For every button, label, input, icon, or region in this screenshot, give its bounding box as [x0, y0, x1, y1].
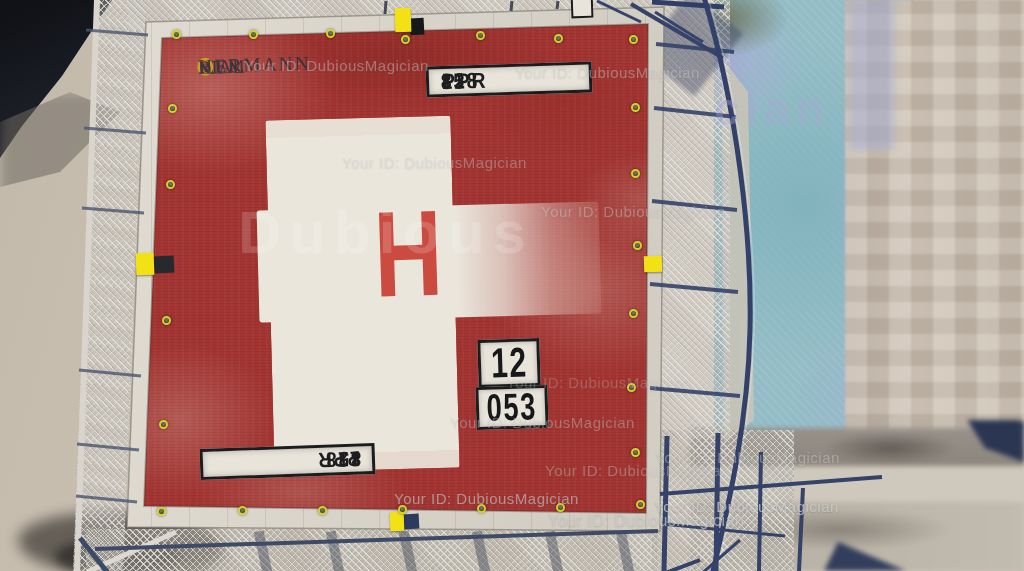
- perimeter-light: [401, 35, 410, 44]
- watermark-id-text: Your ID: DubiousMagician: [394, 490, 579, 507]
- watermark-id-text: Your ID: DubiousMagician: [541, 203, 726, 220]
- watermark-large: Dubious: [238, 198, 534, 267]
- watermark-id-text: Your ID: DubiousMagician: [515, 64, 700, 81]
- perimeter-light: [238, 506, 247, 515]
- perimeter-light: [166, 180, 175, 189]
- perimeter-light: [476, 31, 485, 40]
- watermark-id-text: Your ID: DubiousMagician: [548, 512, 744, 530]
- perimeter-light: [162, 316, 171, 325]
- perimeter-light: [172, 30, 181, 39]
- perimeter-light: [157, 507, 166, 516]
- perimeter-light: [633, 241, 642, 250]
- watermark-id-text: Your ID: DubiousMagician: [342, 154, 527, 171]
- screenshot-root: MEMORIAL HERMANN PPR 128 85 PPR 128 85 1…: [0, 0, 1024, 571]
- perimeter-light: [159, 420, 168, 429]
- perimeter-light: [629, 309, 638, 318]
- perimeter-light: [629, 35, 638, 44]
- watermark-id-text: Your ID: DubiousMagician: [450, 414, 635, 431]
- perimeter-light: [249, 30, 258, 39]
- perimeter-light: [631, 169, 640, 178]
- perimeter-light: [554, 34, 563, 43]
- watermark-id-text: Your ID: DubiousMagician: [545, 462, 730, 479]
- perimeter-light: [168, 104, 177, 113]
- perimeter-light: [631, 103, 640, 112]
- watermark-id-text: Your ID: DubiousMagician: [506, 374, 691, 391]
- perimeter-light: [636, 500, 645, 509]
- perimeter-light: [326, 29, 335, 38]
- watermark-id-text: Your ID: DubiousMagician: [244, 57, 429, 74]
- watermark-tarp-fragment: cian: [714, 82, 830, 136]
- perimeter-light: [631, 448, 640, 457]
- perimeter-light: [318, 506, 327, 515]
